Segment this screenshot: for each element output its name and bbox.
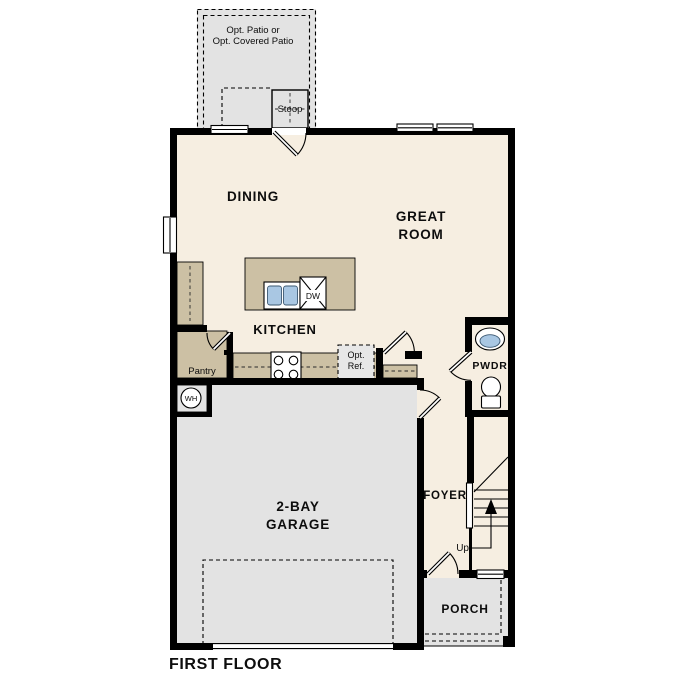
stove-icon xyxy=(271,352,301,382)
opt-ref-label-line2: Ref. xyxy=(348,361,365,371)
patio-label-line2: Opt. Covered Patio xyxy=(213,36,294,47)
porch-label: PORCH xyxy=(441,602,488,616)
pantry-label: Pantry xyxy=(188,366,216,377)
up-label: Up xyxy=(456,543,469,554)
window xyxy=(211,126,248,134)
island-fixtures: DW xyxy=(264,277,326,309)
kitchen-label: KITCHEN xyxy=(253,322,316,337)
stoop-label: Stoop xyxy=(278,104,303,115)
water-heater-label: WH xyxy=(185,394,198,403)
floor-plan: Opt. Patio or Opt. Covered Patio Stoop xyxy=(0,0,687,687)
toilet-icon xyxy=(482,377,501,408)
patio-label-line1: Opt. Patio or xyxy=(226,25,279,36)
window xyxy=(437,124,473,132)
garage-floor xyxy=(177,385,417,645)
garage-overhead-door xyxy=(213,643,393,650)
dining-label: DINING xyxy=(227,189,279,204)
plan-title: FIRST FLOOR xyxy=(169,656,282,673)
stoop: Stoop xyxy=(272,90,308,128)
window xyxy=(164,217,177,253)
dishwasher-label: DW xyxy=(306,291,320,301)
opt-ref-label-line1: Opt. xyxy=(347,350,364,360)
great-room-label-line1: GREAT xyxy=(396,209,446,224)
window xyxy=(397,124,433,132)
garage-label-line2: GARAGE xyxy=(266,517,330,532)
pwdr-label: PWDR xyxy=(472,360,507,372)
optional-refrigerator: Opt. Ref. xyxy=(338,345,374,383)
great-room-label-line2: ROOM xyxy=(398,227,443,242)
drop-zone-cabinet xyxy=(383,365,417,378)
water-heater-icon: WH xyxy=(177,385,207,412)
window xyxy=(477,570,504,579)
foyer-label: FOYER xyxy=(423,490,467,502)
lavatory-icon xyxy=(476,328,505,350)
garage-label-line1: 2-BAY xyxy=(276,499,319,514)
dishwasher-icon: DW xyxy=(300,277,326,309)
